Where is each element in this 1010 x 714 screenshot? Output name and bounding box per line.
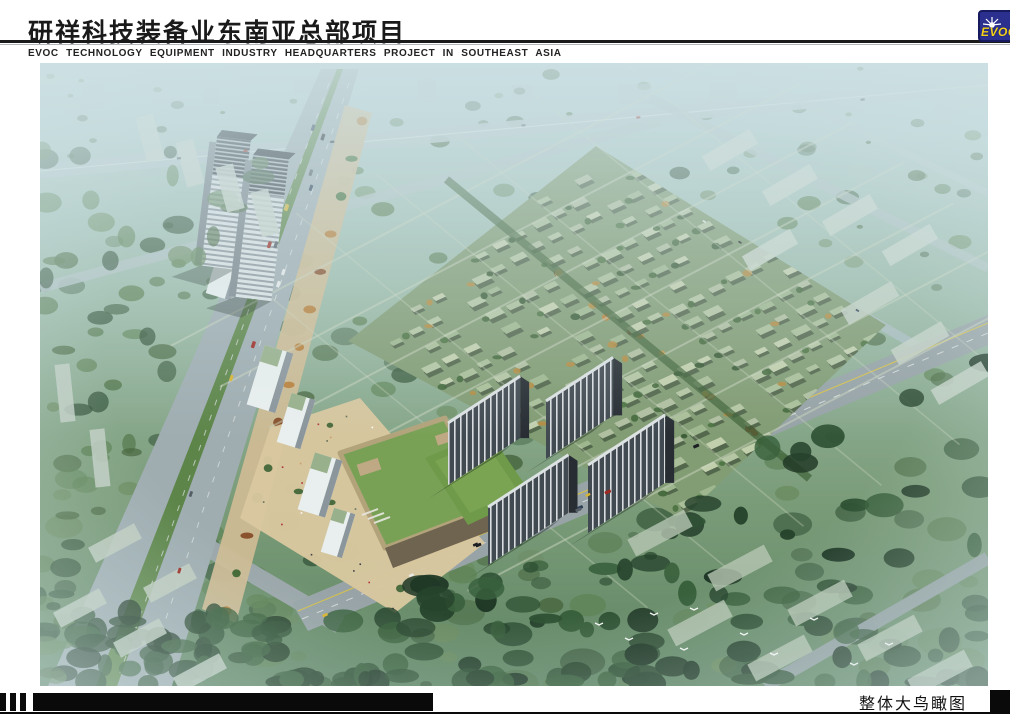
title-rule	[0, 40, 1010, 46]
footer-tick	[10, 693, 16, 711]
footer-corner-square	[990, 690, 1010, 714]
footer-bar	[33, 693, 433, 711]
image-caption: 整体大鸟瞰图	[859, 690, 967, 714]
page-subtitle: EVOC TECHNOLOGY EQUIPMENT INDUSTRY HEADQ…	[28, 48, 562, 59]
footer-tick	[0, 693, 6, 711]
logo-text: EVOC	[981, 26, 1010, 38]
aerial-render-image	[40, 63, 988, 686]
footer-tick	[20, 693, 26, 711]
aerial-render	[40, 63, 988, 686]
evoc-logo: EVOC	[978, 10, 1010, 42]
presentation-page: 研祥科技装备业东南亚总部项目 EVOC TECHNOLOGY EQUIPMENT…	[0, 0, 1010, 714]
